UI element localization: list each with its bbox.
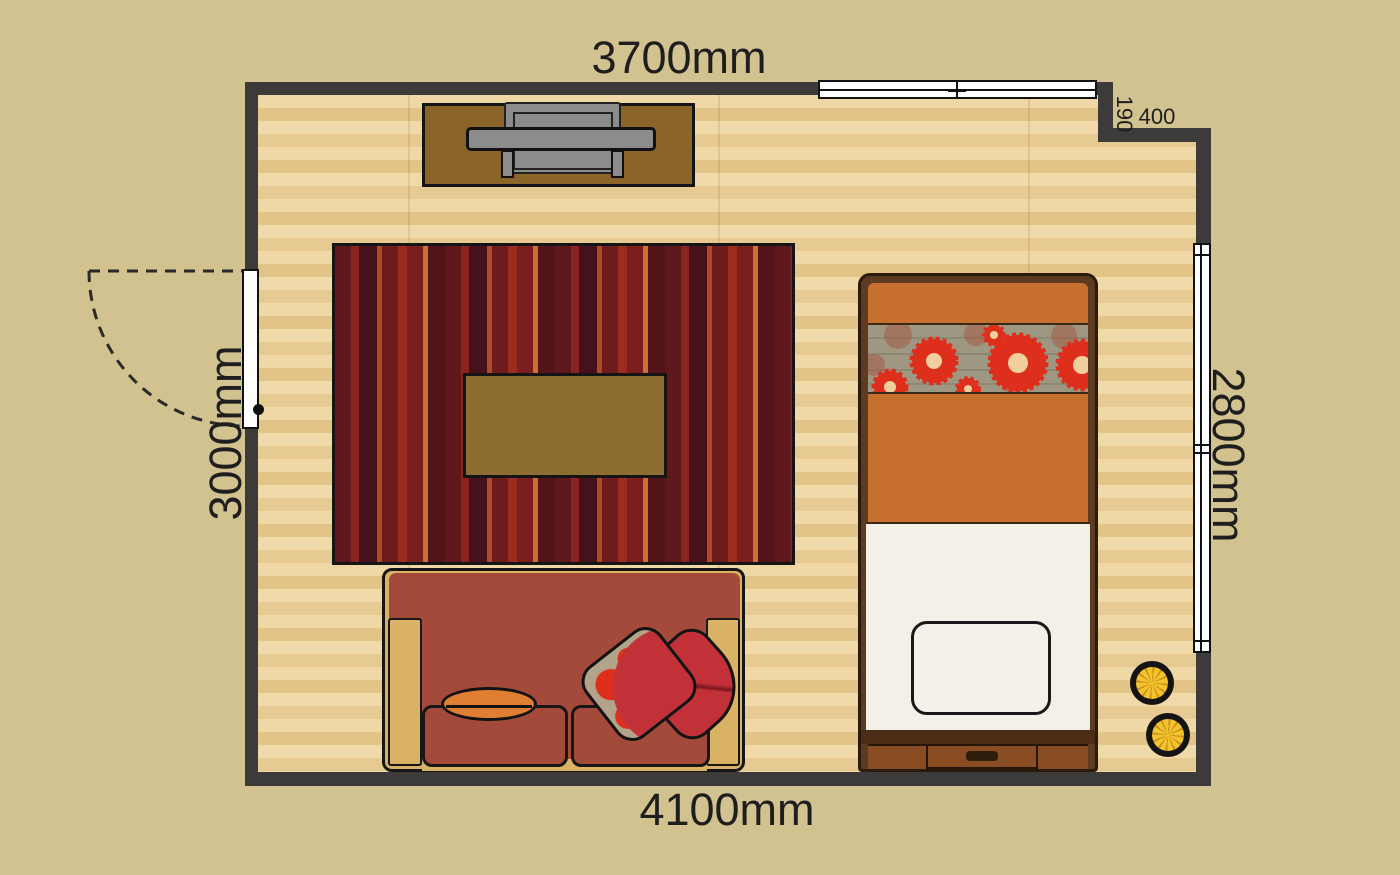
wall-left-upper — [245, 82, 258, 270]
tv-leg — [611, 150, 624, 178]
pouf-top — [1152, 719, 1184, 751]
drawer-handle — [966, 751, 998, 761]
pouf — [1146, 713, 1190, 757]
bed — [858, 273, 1098, 772]
dimension-left: 3000mm — [202, 333, 250, 533]
coffee-table — [463, 373, 667, 478]
bed-drawer — [868, 744, 1088, 769]
pouf-top — [1136, 667, 1168, 699]
floral-band-pattern — [868, 325, 1088, 392]
pouf — [1130, 661, 1174, 705]
sofa — [382, 568, 745, 772]
dimension-right: 2800mm — [1204, 355, 1252, 555]
window-right-end-line — [1195, 254, 1209, 256]
sofa-arm-left — [388, 618, 422, 766]
tv-stand — [422, 103, 695, 187]
bed-pillow — [911, 621, 1051, 715]
dimension-top: 3700mm — [479, 34, 879, 81]
tv-leg — [501, 150, 514, 178]
floor-plan: 3700mm 4100mm 3000mm 2800mm 190 400 — [0, 0, 1400, 875]
bed-floral-band — [868, 323, 1088, 394]
window-right-sash-line — [1200, 245, 1202, 651]
window-top — [818, 80, 1097, 99]
dimension-bottom: 4100mm — [527, 786, 927, 833]
window-right-end-line — [1195, 640, 1209, 642]
tv-screen-bar — [466, 127, 656, 151]
dimension-notch-width: 400 — [1112, 104, 1202, 130]
round-pillow — [441, 687, 537, 721]
drawer-bottom-line — [926, 767, 1038, 769]
bed-footboard — [861, 730, 1095, 744]
window-top-divider-tick — [948, 90, 966, 92]
round-pillow-seam — [446, 705, 532, 708]
bed-duvet — [868, 283, 1088, 525]
